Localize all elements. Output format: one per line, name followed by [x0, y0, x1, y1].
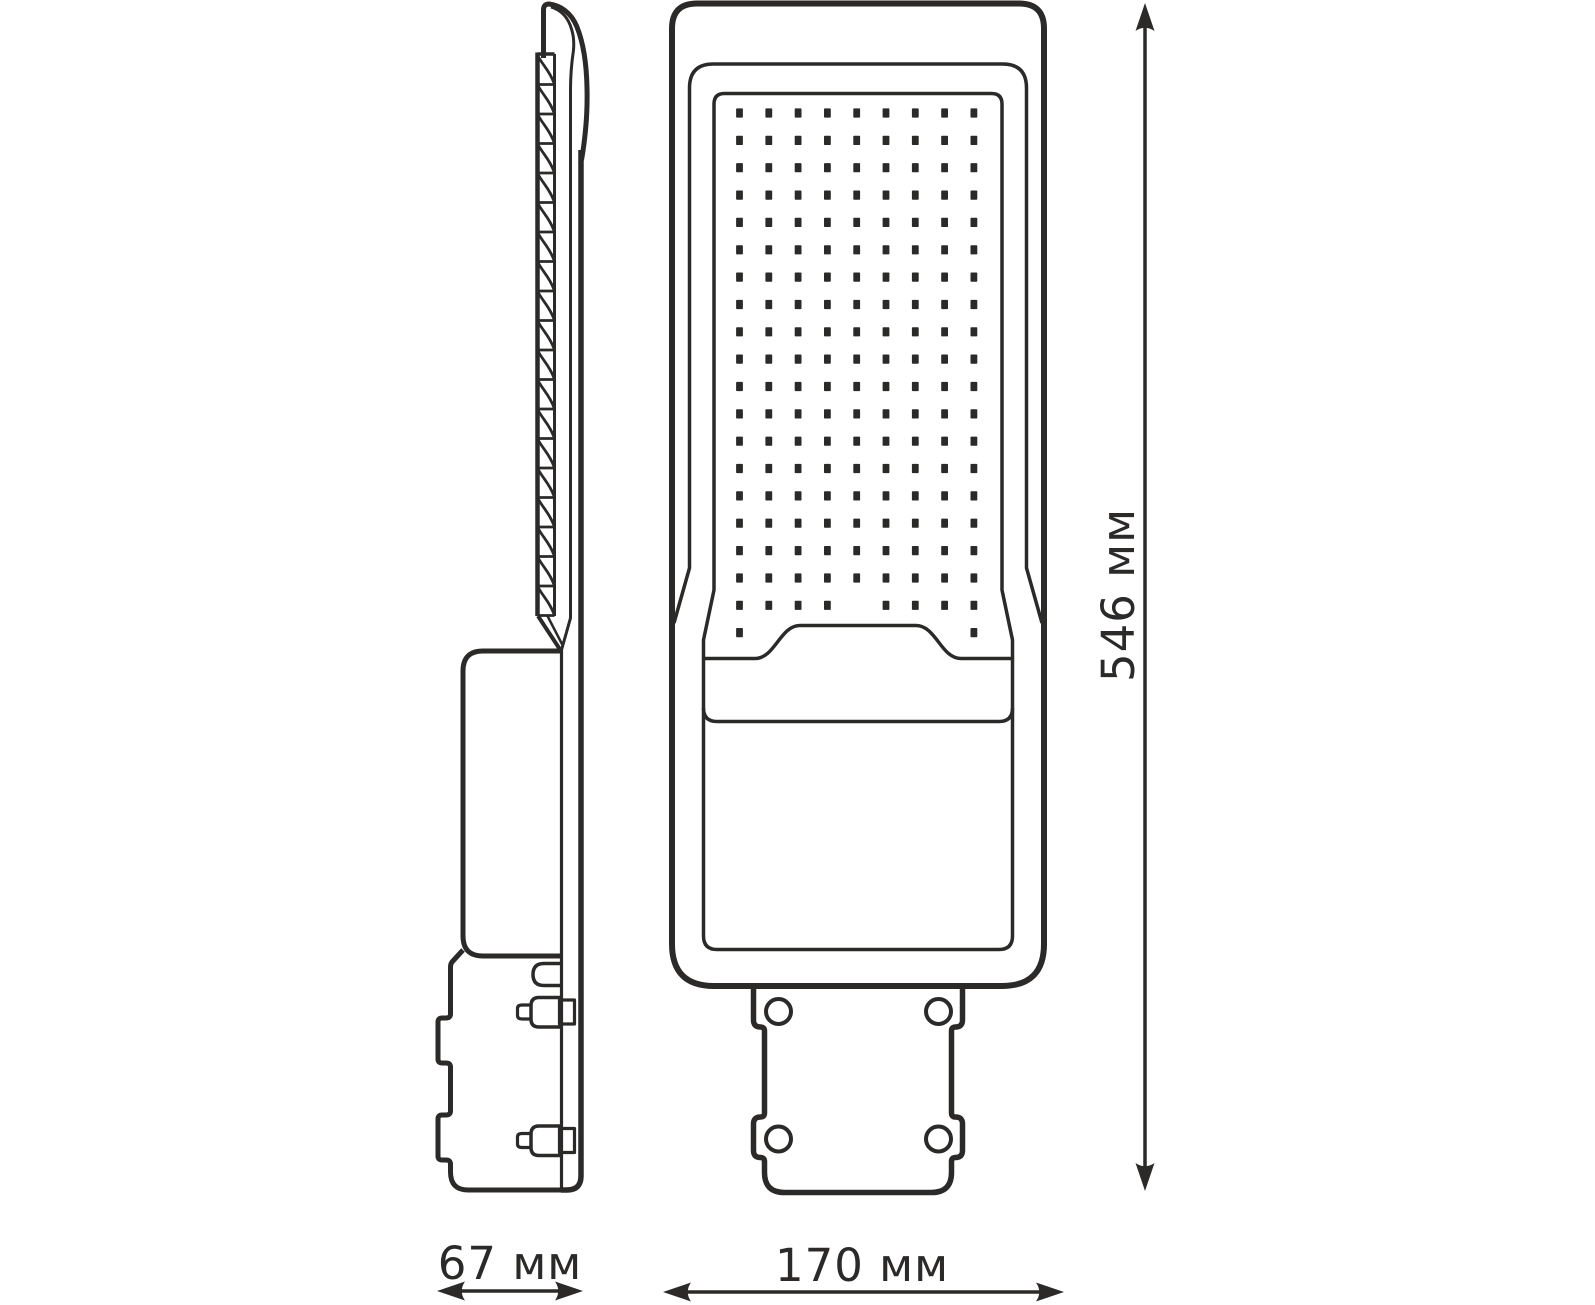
- fin-blade: [539, 500, 555, 526]
- mounting-bolt-lower: [518, 1126, 575, 1156]
- led-dot: [765, 327, 772, 336]
- led-dot: [853, 108, 860, 117]
- led-dot: [736, 628, 743, 637]
- led-dot: [736, 273, 743, 282]
- led-dot: [736, 163, 743, 172]
- led-dot: [795, 437, 802, 446]
- led-dot: [941, 355, 948, 364]
- led-dot: [912, 437, 919, 446]
- led-dot: [765, 601, 772, 610]
- mounting-bracket-front: [754, 988, 963, 1193]
- led-dot: [853, 300, 860, 309]
- led-dot: [736, 245, 743, 254]
- led-dot: [795, 245, 802, 254]
- led-dot: [824, 218, 831, 227]
- led-dot: [795, 409, 802, 418]
- led-dot: [941, 163, 948, 172]
- led-dot: [736, 218, 743, 227]
- led-dot: [765, 409, 772, 418]
- led-dot: [941, 601, 948, 610]
- bolt-body: [531, 998, 561, 1028]
- led-dot: [736, 519, 743, 528]
- height-dimension: 546 мм: [1092, 3, 1155, 1191]
- led-dot: [765, 464, 772, 473]
- led-dot: [824, 409, 831, 418]
- led-dot: [883, 245, 890, 254]
- led-dot: [941, 409, 948, 418]
- led-dot: [853, 464, 860, 473]
- bracket-tab-side: [533, 964, 561, 986]
- bolt-body: [531, 1126, 561, 1156]
- bolt-hole: [926, 1127, 951, 1152]
- heatsink-fins: [538, 53, 564, 652]
- led-dot: [795, 136, 802, 145]
- led-dot: [971, 355, 978, 364]
- led-dot: [853, 218, 860, 227]
- led-dot: [912, 327, 919, 336]
- technical-drawing-canvas: 546 мм 67 мм 170 мм: [0, 0, 1595, 1305]
- led-dot: [824, 519, 831, 528]
- led-dot: [853, 273, 860, 282]
- led-dot: [883, 218, 890, 227]
- led-dot: [853, 573, 860, 582]
- led-dot: [941, 300, 948, 309]
- led-dot: [941, 464, 948, 473]
- led-dot: [824, 355, 831, 364]
- front-width-dimension: 170 мм: [663, 1239, 1064, 1302]
- led-dot: [912, 382, 919, 391]
- fin-blade: [539, 352, 555, 378]
- led-dot: [941, 573, 948, 582]
- led-dot: [883, 355, 890, 364]
- led-dot: [941, 519, 948, 528]
- led-dot: [912, 218, 919, 227]
- led-dot: [736, 546, 743, 555]
- led-dot: [883, 464, 890, 473]
- bolt-tip: [518, 1005, 532, 1019]
- led-dot: [824, 245, 831, 254]
- led-dot: [971, 382, 978, 391]
- led-dot: [883, 601, 890, 610]
- led-dot: [824, 300, 831, 309]
- front-width-label: 170 мм: [775, 1239, 949, 1292]
- height-dimension-label: 546 мм: [1092, 508, 1145, 682]
- front-view-drawing: [672, 4, 1044, 1193]
- led-dot: [795, 273, 802, 282]
- led-dot: [941, 191, 948, 200]
- led-dot: [912, 163, 919, 172]
- led-dot: [883, 108, 890, 117]
- fin-cells: [538, 57, 555, 616]
- led-dot: [736, 464, 743, 473]
- led-dot: [795, 546, 802, 555]
- led-dot: [853, 409, 860, 418]
- fin-blade: [539, 293, 555, 319]
- led-dot: [853, 136, 860, 145]
- led-dot: [971, 437, 978, 446]
- led-dot: [912, 573, 919, 582]
- led-dot: [912, 491, 919, 500]
- bolt-hole: [766, 999, 791, 1024]
- led-dot: [971, 273, 978, 282]
- inner-face-outline: [674, 64, 1042, 623]
- led-dot: [971, 300, 978, 309]
- led-dot: [971, 546, 978, 555]
- led-dot: [824, 601, 831, 610]
- led-dot: [941, 491, 948, 500]
- led-dot: [971, 245, 978, 254]
- led-dot: [795, 108, 802, 117]
- led-dot: [883, 300, 890, 309]
- led-dot: [736, 491, 743, 500]
- led-dot: [824, 136, 831, 145]
- led-dot: [912, 601, 919, 610]
- fin-blade: [539, 529, 555, 555]
- led-dot: [795, 491, 802, 500]
- led-dot: [824, 191, 831, 200]
- led-dot: [883, 491, 890, 500]
- fin-blade: [539, 234, 555, 260]
- led-dot: [971, 491, 978, 500]
- led-dot: [736, 573, 743, 582]
- fin-blade: [539, 116, 555, 142]
- led-dot: [941, 136, 948, 145]
- led-dot: [883, 273, 890, 282]
- led-dot: [765, 546, 772, 555]
- led-dot: [971, 191, 978, 200]
- led-dot: [971, 218, 978, 227]
- led-dot: [883, 382, 890, 391]
- led-dot: [795, 601, 802, 610]
- bolt-hole: [766, 1127, 791, 1152]
- led-dot: [853, 163, 860, 172]
- fin-blade: [539, 382, 555, 408]
- led-dot: [736, 300, 743, 309]
- led-dot: [912, 136, 919, 145]
- led-dot: [824, 546, 831, 555]
- led-dot: [853, 437, 860, 446]
- led-dot: [971, 628, 978, 637]
- led-dot: [912, 108, 919, 117]
- led-dot: [824, 464, 831, 473]
- led-dot: [912, 464, 919, 473]
- led-dot: [941, 273, 948, 282]
- led-dot: [736, 108, 743, 117]
- led-dot: [912, 409, 919, 418]
- led-dot: [765, 300, 772, 309]
- led-dot: [941, 218, 948, 227]
- fin-blade: [539, 588, 555, 614]
- led-dot: [912, 191, 919, 200]
- led-dot: [795, 382, 802, 391]
- led-panel-bump: [704, 626, 1013, 659]
- led-dot: [824, 327, 831, 336]
- led-dot: [883, 136, 890, 145]
- side-view-drawing: [438, 4, 587, 1190]
- bolt-hole: [926, 999, 951, 1024]
- led-panel-lower-edge: [704, 708, 1013, 722]
- side-width-dimension: 67 мм: [437, 1237, 583, 1301]
- fin-blade: [539, 323, 555, 349]
- led-dot: [912, 519, 919, 528]
- led-dot: [941, 437, 948, 446]
- led-dot: [912, 300, 919, 309]
- led-dot: [853, 355, 860, 364]
- led-dot: [971, 136, 978, 145]
- led-dot: [795, 300, 802, 309]
- fin-blade: [539, 175, 555, 201]
- led-dot: [941, 382, 948, 391]
- fin-blade: [539, 411, 555, 437]
- led-dot: [941, 245, 948, 254]
- fin-blade: [539, 146, 555, 172]
- led-dot: [941, 108, 948, 117]
- arrowhead-up-icon: [1136, 3, 1155, 31]
- led-dot: [795, 163, 802, 172]
- led-dot: [883, 546, 890, 555]
- fin-blade: [539, 441, 555, 467]
- led-dot: [941, 546, 948, 555]
- led-dot: [765, 491, 772, 500]
- led-dot: [971, 327, 978, 336]
- led-dot: [736, 355, 743, 364]
- led-dot: [765, 218, 772, 227]
- led-dot: [971, 519, 978, 528]
- led-dot: [853, 382, 860, 391]
- arrowhead-right-icon: [1036, 1283, 1064, 1302]
- led-dot: [736, 136, 743, 145]
- fin-blade: [539, 264, 555, 290]
- led-dot: [853, 491, 860, 500]
- fin-blade: [539, 205, 555, 231]
- driver-box-side: [463, 651, 561, 956]
- led-dot: [912, 355, 919, 364]
- led-dot: [883, 191, 890, 200]
- arrowhead-left-icon: [663, 1283, 691, 1302]
- led-dot: [795, 218, 802, 227]
- led-dot: [765, 355, 772, 364]
- led-dot: [736, 191, 743, 200]
- led-dot: [853, 327, 860, 336]
- led-dot: [971, 601, 978, 610]
- mounting-bolt-upper: [518, 998, 575, 1028]
- arrowhead-down-icon: [1136, 1163, 1155, 1191]
- led-dot: [971, 108, 978, 117]
- led-dot: [971, 464, 978, 473]
- led-dot: [765, 273, 772, 282]
- led-dot: [765, 245, 772, 254]
- led-dot: [736, 409, 743, 418]
- led-dot: [765, 573, 772, 582]
- led-dot: [765, 136, 772, 145]
- fin-blade: [539, 470, 555, 496]
- led-dot: [883, 409, 890, 418]
- led-dot: [736, 601, 743, 610]
- led-dot: [853, 245, 860, 254]
- led-dot: [795, 327, 802, 336]
- led-dot: [795, 464, 802, 473]
- led-dot: [912, 245, 919, 254]
- led-dot: [941, 327, 948, 336]
- side-width-label: 67 мм: [438, 1237, 582, 1290]
- led-dot: [765, 108, 772, 117]
- led-dot: [824, 382, 831, 391]
- led-dot: [853, 519, 860, 528]
- led-dot: [883, 163, 890, 172]
- led-dot: [795, 519, 802, 528]
- led-dot: [765, 382, 772, 391]
- led-dot: [971, 163, 978, 172]
- led-dot: [795, 355, 802, 364]
- led-dot: [824, 273, 831, 282]
- led-dot: [912, 546, 919, 555]
- led-dot: [736, 327, 743, 336]
- led-dot: [765, 519, 772, 528]
- led-dot: [971, 409, 978, 418]
- led-dot: [883, 437, 890, 446]
- led-dot: [824, 163, 831, 172]
- led-dot: [883, 573, 890, 582]
- led-dot: [853, 191, 860, 200]
- led-dot: [795, 191, 802, 200]
- led-dot: [824, 108, 831, 117]
- drawing-background: 546 мм 67 мм 170 мм: [0, 0, 1595, 1305]
- led-dot: [912, 273, 919, 282]
- led-dot: [765, 163, 772, 172]
- led-dot: [765, 191, 772, 200]
- led-dot: [824, 491, 831, 500]
- led-dot: [971, 573, 978, 582]
- led-dot: [883, 519, 890, 528]
- fin-blade: [539, 57, 555, 83]
- led-dot: [883, 327, 890, 336]
- led-dot: [795, 573, 802, 582]
- led-dot: [765, 437, 772, 446]
- led-dot: [736, 437, 743, 446]
- fin-blade: [539, 559, 555, 585]
- bolt-tip: [518, 1134, 532, 1148]
- led-dot: [824, 573, 831, 582]
- led-dots-grid: [736, 108, 977, 637]
- led-dot: [736, 382, 743, 391]
- led-dot: [824, 437, 831, 446]
- led-dot: [853, 546, 860, 555]
- fin-blade: [539, 87, 555, 113]
